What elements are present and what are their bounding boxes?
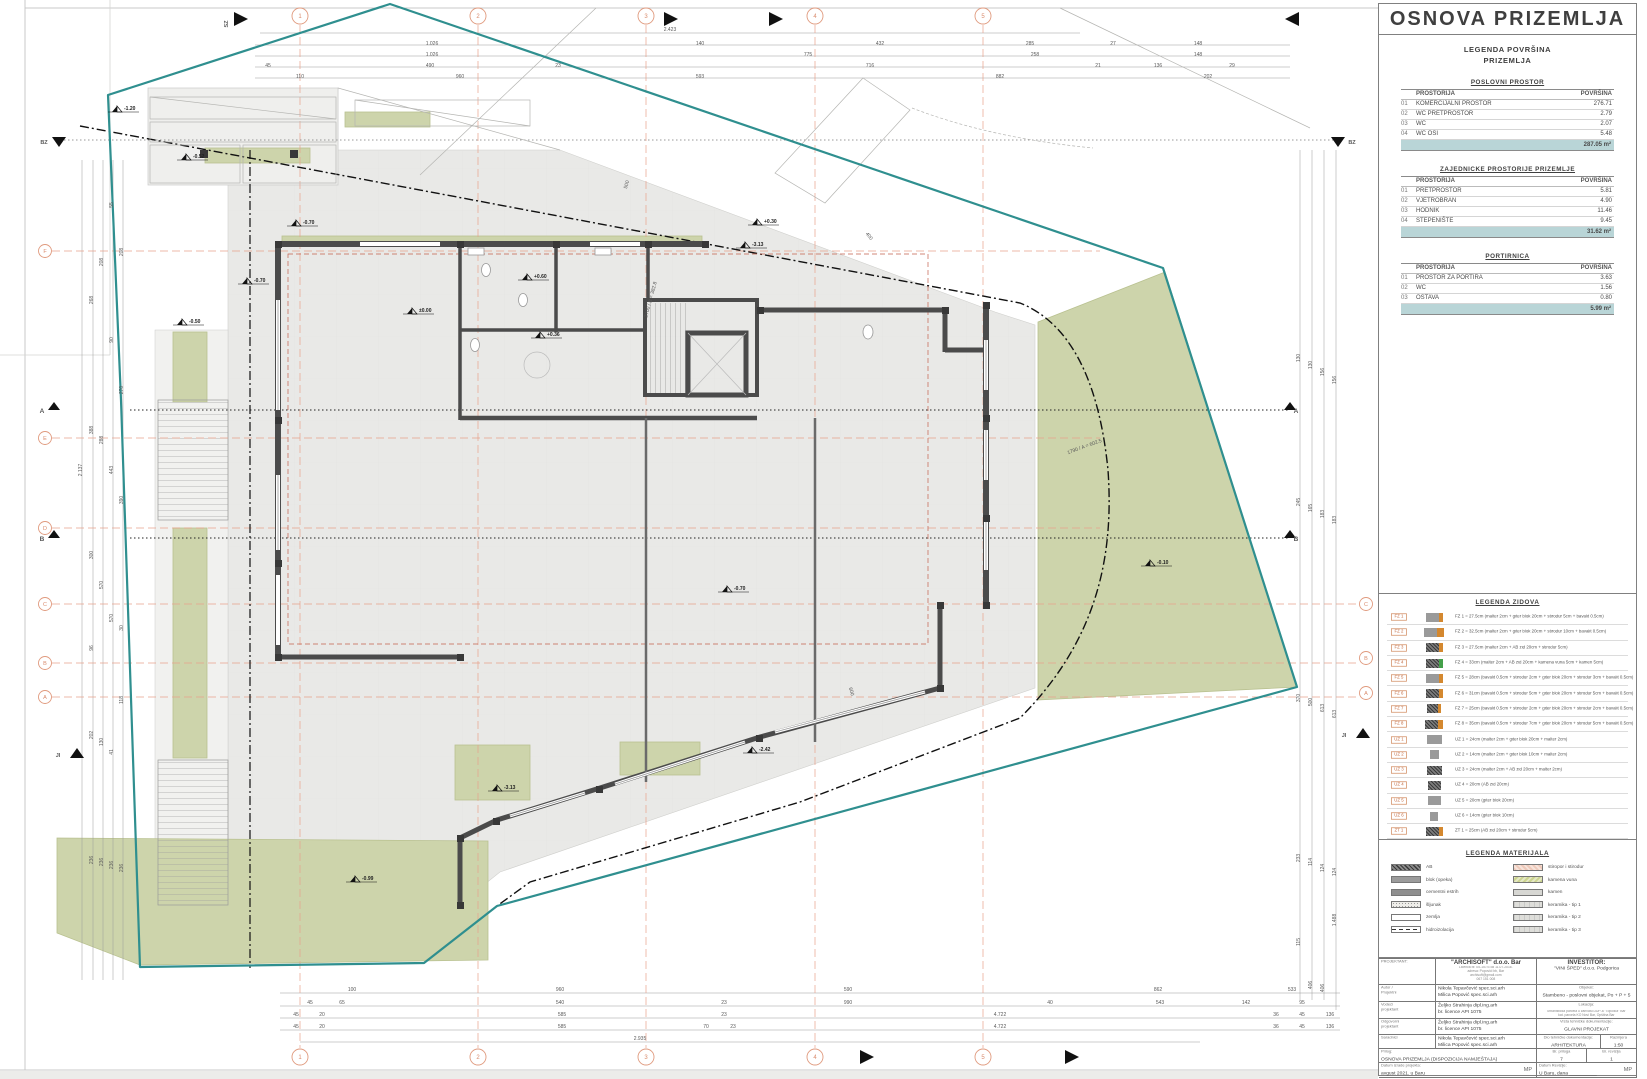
wall-legend-row: FZ 5FZ 5 = 28cm (bavalit 0.5cm + stirodu…	[1387, 671, 1628, 686]
dim-label: 45	[307, 1000, 313, 1006]
dim-label: 114	[1308, 858, 1314, 866]
material-row: stiropor i stirodur	[1513, 861, 1625, 874]
material-legend: LEGENDA MATERIJALA ABblok (opeka)cementn…	[1379, 844, 1636, 958]
material-row: hidroizolacija	[1391, 924, 1503, 937]
title-block-cell: PROJEKTANT:	[1379, 959, 1436, 985]
dim-label: 2.935	[634, 1036, 647, 1042]
dim-label: 96	[89, 645, 95, 651]
wall-swatch	[1419, 643, 1449, 652]
title-block-cell: Dio tehničke dokumentacije:ARHITEKTURA	[1537, 1035, 1601, 1049]
dim-label: 165	[1308, 504, 1314, 513]
dim-label: 500	[1308, 698, 1314, 707]
dim-label: BZ	[1348, 140, 1356, 146]
dim-label: 124	[1332, 868, 1338, 877]
dim-label: 45	[265, 63, 271, 69]
level-label: +0.60	[534, 274, 547, 280]
dim-label: 55	[109, 202, 115, 208]
title-block: PROJEKTANT:"ARCHISOFT" d.o.o. BarLicenca…	[1379, 958, 1636, 1077]
grid-bubble-label: A	[1364, 691, 1368, 697]
dim-label: 540	[556, 1000, 565, 1006]
grid-bubble-label: E	[43, 436, 47, 442]
wall-legend-row: ZT 1ZT 1 = 25cm (AB zid 20cm + stirodur …	[1387, 824, 1628, 839]
grid-bubble-label: C	[1364, 602, 1368, 608]
material-label: keramika - tip 1	[1548, 902, 1581, 907]
wall-tag: UZ 4	[1391, 782, 1407, 789]
title-block-cell: Željko Strahinja dipl.ing.arh br. licenc…	[1436, 1019, 1537, 1035]
dim-label: 300	[89, 551, 95, 560]
material-row: keramika - tip 2	[1513, 911, 1625, 924]
title-block-cell: Nikola Tepavčević spec.sci.arh Milica Po…	[1436, 985, 1537, 1002]
dim-label: 570	[109, 614, 115, 623]
dim-label: 443	[109, 466, 115, 475]
dim-label: 202	[89, 731, 95, 740]
area-table-row: 02WC1.56	[1401, 284, 1614, 294]
dim-label: 570	[99, 581, 105, 590]
dim-label: 148	[1194, 41, 1203, 47]
dim-label: 882	[996, 74, 1005, 80]
wall-tag: FZ 4	[1391, 659, 1407, 666]
drawing-sheet: 2.4231.026140432285271481.02677525814845…	[0, 0, 1647, 1079]
dim-label: A	[1294, 408, 1299, 415]
title-block-cell: Lokacija:urbanistička parcela u zahvatu …	[1537, 1002, 1637, 1019]
dim-label: 23	[721, 1000, 727, 1006]
dim-label: 142	[1242, 1000, 1251, 1006]
grid-bubble-label: B	[1364, 656, 1368, 662]
wall-desc: UZ 5 = 20cm (giter blok 20cm)	[1455, 799, 1514, 803]
wall-swatch	[1419, 674, 1449, 683]
level-label: -2.42	[759, 747, 771, 753]
wall-swatch	[1419, 628, 1449, 637]
dim-label: 775	[804, 52, 813, 58]
material-label: blok (opeka)	[1426, 877, 1452, 882]
dim-label: 400	[864, 231, 874, 241]
wall-swatch	[1419, 689, 1449, 698]
dim-label: 236	[109, 861, 115, 870]
dim-label: 202	[1204, 74, 1213, 80]
wall-tag: ZT 1	[1391, 828, 1407, 835]
wall-legend-row: UZ 2UZ 2 = 14cm (malter 2cm + giter blok…	[1387, 748, 1628, 763]
dim-label: 285	[1026, 41, 1035, 47]
level-label: +0.36	[547, 332, 560, 338]
area-table-row: 02VJETROBRAN4.90	[1401, 197, 1614, 207]
wall-legend-row: FZ 6FZ 6 = 31cm (bavalit 0.5cm + stirodu…	[1387, 686, 1628, 701]
wall-legend-row: UZ 5UZ 5 = 20cm (giter blok 20cm)	[1387, 794, 1628, 809]
dim-label: 270	[119, 386, 125, 395]
dim-label: 40	[1047, 1000, 1053, 1006]
wall-desc: FZ 5 = 28cm (bavalit 0.5cm + stirodur 2c…	[1455, 676, 1633, 680]
dim-label: 2.137	[78, 464, 84, 477]
dim-label: 45	[293, 1024, 299, 1030]
material-swatch	[1391, 926, 1421, 933]
dim-label: 130	[1308, 361, 1314, 370]
wall-desc: UZ 2 = 14cm (malter 2cm + giter blok 10c…	[1455, 753, 1567, 757]
dim-label: 20	[319, 1012, 325, 1018]
level-label: -0.50	[189, 319, 201, 325]
dim-label: 716	[866, 63, 875, 69]
dim-label: 1.026	[426, 41, 439, 47]
dim-label: 29	[1229, 63, 1235, 69]
dim-label: 208	[119, 248, 125, 257]
dim-label: 45	[1299, 1012, 1305, 1018]
wall-desc: FZ 8 = 35cm (bavalit 0.5cm + stirodur 7c…	[1455, 722, 1633, 726]
title-block-cell: Prilog:OSNOVA PRIZEMLJA (DISPOZICIJA NAM…	[1379, 1049, 1537, 1063]
wall-desc: FZ 1 = 27.5cm (malter 2cm + giter blok 2…	[1455, 615, 1604, 619]
wall-swatch	[1419, 613, 1449, 622]
wall-swatch	[1419, 750, 1449, 759]
dim-label: 23	[730, 1024, 736, 1030]
wall-tag: UZ 2	[1391, 751, 1407, 758]
wall-desc: FZ 3 = 27.5cm (malter 2cm + AB zid 20cm …	[1455, 646, 1568, 650]
material-row: blok (opeka)	[1391, 874, 1503, 887]
dim-label: 36	[1273, 1012, 1279, 1018]
material-label: keramika - tip 3	[1548, 927, 1581, 932]
area-tables: POSLOVNI PROSTORPROSTORIJAPOVRŠINA01KOME…	[1379, 79, 1636, 315]
material-swatch	[1513, 864, 1543, 871]
wall-legend-row: FZ 7FZ 7 = 25cm (bavalit 0.5cm + stirodu…	[1387, 702, 1628, 717]
dim-label: 140	[696, 41, 705, 47]
wall-legend-rows: FZ 1FZ 1 = 27.5cm (malter 2cm + giter bl…	[1387, 610, 1628, 839]
area-table-row: 04WC OSI5.48	[1401, 130, 1614, 140]
area-table-name: POSLOVNI PROSTOR	[1401, 79, 1614, 86]
level-marker	[117, 106, 122, 112]
wall-desc: UZ 6 = 14cm (giter blok 10cm)	[1455, 814, 1514, 818]
material-row: šljunak	[1391, 899, 1503, 912]
dim-label: 245	[1296, 498, 1302, 507]
dim-label: 36	[1273, 1024, 1279, 1030]
dim-label: 65	[339, 1000, 345, 1006]
wall-legend-row: UZ 4UZ 4 = 20cm (AB zid 20cm)	[1387, 778, 1628, 793]
material-swatch	[1513, 889, 1543, 896]
material-swatch	[1391, 914, 1421, 921]
wall-desc: FZ 7 = 25cm (bavalit 0.5cm + stirodur 2c…	[1455, 707, 1633, 711]
material-swatch	[1391, 901, 1421, 908]
title-block-cell: "ARCHISOFT" d.o.o. BarLicenca br. 05-157…	[1436, 959, 1537, 985]
wall-swatch	[1419, 781, 1449, 790]
wall-legend-row: UZ 6UZ 6 = 14cm (giter blok 10cm)	[1387, 809, 1628, 824]
wall-legend-row: FZ 1FZ 1 = 27.5cm (malter 2cm + giter bl…	[1387, 610, 1628, 625]
title-block-cell: Datum Revizije:U Baru, dana __________MP	[1537, 1063, 1637, 1078]
dim-label: 490	[426, 63, 435, 69]
material-row: cementni estrih	[1391, 886, 1503, 899]
title-block-cell: Razmjera1:50	[1601, 1035, 1637, 1049]
dim-label: 236	[119, 864, 125, 873]
title-block-cell: Vodeći projektant	[1379, 1002, 1436, 1019]
dim-label: 30	[119, 625, 125, 631]
floor-plan: 2.4231.026140432285271481.02677525814845…	[0, 0, 1378, 1079]
level-label: -3.13	[504, 785, 516, 791]
dim-label: 208	[99, 258, 105, 267]
area-table-total: 287.05 m²	[1401, 140, 1614, 151]
level-label: +0.30	[764, 219, 777, 225]
area-table-name: PORTIRNICA	[1401, 253, 1614, 260]
wall-tag: FZ 6	[1391, 690, 1407, 697]
area-table-row: 03HODNIK11.46	[1401, 207, 1614, 217]
dim-label: 2.423	[664, 27, 677, 33]
wall-tag: UZ 5	[1391, 797, 1407, 804]
material-label: AB	[1426, 865, 1432, 870]
title-block-cell: Datum izrade projekta:avgust 2021. u Bar…	[1379, 1063, 1537, 1078]
dim-label: 585	[558, 1012, 567, 1018]
dim-label: 543	[1156, 1000, 1165, 1006]
dim-label: B	[1294, 536, 1299, 543]
area-table: PORTIRNICAPROSTORIJAPOVRŠINA01PROSTOR ZA…	[1401, 253, 1614, 315]
dim-label: 288	[99, 436, 105, 445]
wall-swatch	[1419, 704, 1449, 713]
material-row: zemlja	[1391, 911, 1503, 924]
dim-label: 115	[1296, 938, 1302, 946]
material-row: keramika - tip 1	[1513, 899, 1625, 912]
dim-label: 156	[1320, 368, 1326, 377]
level-label: -0.10	[1157, 560, 1169, 566]
wall-swatch	[1419, 827, 1449, 836]
dim-label: 268	[89, 296, 95, 305]
wall-legend-row: UZ 3UZ 3 = 24cm (malter 2cm + AB zid 20c…	[1387, 763, 1628, 778]
wall-tag: FZ 5	[1391, 675, 1407, 682]
area-table-row: 01PROSTOR ZA PORTIRA3.63	[1401, 274, 1614, 284]
dim-label: 183	[1320, 510, 1326, 519]
dim-label: 236	[89, 856, 95, 865]
title-block-cell: Željko Strahinja dipl.ing.arh br. licenc…	[1436, 1002, 1537, 1019]
title-block-cell: Odgovorni projektant	[1379, 1019, 1436, 1035]
material-swatch	[1513, 914, 1543, 921]
dim-label: 1.488	[1332, 914, 1338, 927]
legend-heading: LEGENDA POVRŠINA PRIZEMLJA	[1379, 44, 1636, 67]
wall-tag: FZ 1	[1391, 614, 1407, 621]
level-marker	[182, 319, 187, 325]
wall-tag: FZ 3	[1391, 644, 1407, 651]
area-table-row: 01KOMERCIJALNI PROSTOR276.71	[1401, 100, 1614, 110]
level-marker	[112, 106, 117, 112]
material-swatch	[1513, 901, 1543, 908]
dim-label: 233	[1296, 854, 1302, 863]
building-footprint	[148, 88, 1035, 908]
level-label: -3.13	[752, 242, 764, 248]
dim-label: 613	[1320, 704, 1326, 713]
grid-bubble-label: D	[43, 526, 47, 532]
wall-swatch	[1419, 735, 1449, 744]
dim-label: JI	[56, 753, 61, 759]
level-label: -0.52	[193, 154, 205, 160]
level-marker	[177, 319, 182, 325]
wall-tag: FZ 7	[1391, 705, 1407, 712]
dim-label: 21	[1095, 63, 1101, 69]
wall-legend-row: UZ 1UZ 1 = 24cm (malter 2cm + giter blok…	[1387, 732, 1628, 747]
dim-label: 585	[558, 1024, 567, 1030]
material-swatch	[1513, 876, 1543, 883]
dim-label: 95	[1299, 1000, 1305, 1006]
wall-desc: FZ 2 = 32.5cm (malter 2cm + giter blok 2…	[1455, 630, 1606, 634]
grid-bubble-label: C	[43, 602, 47, 608]
material-label: hidroizolacija	[1426, 927, 1454, 932]
level-label: -0.70	[303, 220, 315, 226]
material-row: keramika - tip 3	[1513, 924, 1625, 937]
wall-legend-row: FZ 4FZ 4 = 33cm (malter 2cm + AB zid 20c…	[1387, 656, 1628, 671]
grid-bubble-label: A	[43, 695, 47, 701]
title-block-cell: Objekat:Stambeno - poslovni objekat, Po …	[1537, 985, 1637, 1002]
area-table-row: 01PRETPROSTOR5.81	[1401, 187, 1614, 197]
title-block-cell: INVESTITOR:"VINI ŠPED" d.o.o. Podgorica	[1537, 959, 1637, 985]
material-swatch	[1513, 926, 1543, 933]
material-label: šljunak	[1426, 902, 1441, 907]
wall-swatch	[1419, 812, 1449, 821]
grid-bubble-label: B	[43, 661, 47, 667]
dim-label: A	[40, 408, 45, 415]
dim-label: 130	[99, 738, 105, 747]
material-label: stiropor i stirodur	[1548, 865, 1584, 870]
dim-label: 613	[1332, 710, 1338, 719]
dim-label: 1.026	[426, 52, 439, 58]
dim-label: 20	[319, 1024, 325, 1030]
dim-label: 960	[456, 74, 465, 80]
area-table-header: PROSTORIJAPOVRŠINA	[1401, 263, 1614, 274]
wall-legend: LEGENDA ZIDOVA FZ 1FZ 1 = 27.5cm (malter…	[1379, 593, 1636, 840]
material-label: kamena vuna	[1548, 877, 1577, 882]
wall-desc: UZ 1 = 24cm (malter 2cm + giter blok 20c…	[1455, 737, 1567, 741]
area-table: ZAJEDNICKE PROSTORIJE PRIZEMLJEPROSTORIJ…	[1401, 166, 1614, 238]
wall-legend-row: FZ 3FZ 3 = 27.5cm (malter 2cm + AB zid 2…	[1387, 641, 1628, 656]
dim-label: 432	[876, 41, 885, 47]
area-table-row: 02WC PRETPROSTOR2.79	[1401, 110, 1614, 120]
area-table-header: PROSTORIJAPOVRŠINA	[1401, 176, 1614, 187]
wall-legend-row: FZ 8FZ 8 = 35cm (bavalit 0.5cm + stirodu…	[1387, 717, 1628, 732]
dim-label: B	[40, 536, 45, 543]
wall-tag: UZ 3	[1391, 767, 1407, 774]
dim-label: 41	[109, 749, 115, 755]
dim-label: 136	[1326, 1024, 1335, 1030]
wall-tag: UZ 1	[1391, 736, 1407, 743]
dim-label: 990	[844, 1000, 853, 1006]
legend-heading-line2: PRIZEMLJA	[1379, 55, 1636, 66]
wall-desc: FZ 6 = 31cm (bavalit 0.5cm + stirodur 5c…	[1455, 691, 1633, 695]
dim-label: 183	[1332, 516, 1338, 525]
dim-label: 406	[1308, 981, 1314, 990]
wall-desc: UZ 4 = 20cm (AB zid 20cm)	[1455, 783, 1509, 787]
dim-label: 388	[89, 426, 95, 435]
dim-label: 590	[844, 987, 853, 993]
wall-tag: UZ 6	[1391, 812, 1407, 819]
material-legend-right: stiropor i stirodurkamena vunakamenkeram…	[1513, 861, 1625, 936]
title-panel: OSNOVA PRIZEMLJA LEGENDA POVRŠINA PRIZEM…	[1378, 3, 1637, 1076]
legend-heading-line1: LEGENDA POVRŠINA	[1379, 44, 1636, 55]
area-table-row: 03WC2.07	[1401, 120, 1614, 130]
material-label: kamen	[1548, 890, 1562, 895]
wall-swatch	[1419, 659, 1449, 668]
title-block-cell: Vrsta tehničke dokumentacije:GLAVNI PROJ…	[1537, 1019, 1637, 1035]
material-swatch	[1391, 889, 1421, 896]
area-table-header: PROSTORIJAPOVRŠINA	[1401, 89, 1614, 100]
dim-label: 23	[721, 1012, 727, 1018]
dim-label: 110	[296, 74, 304, 80]
material-row: kamen	[1513, 886, 1625, 899]
level-label: ±0.00	[419, 308, 432, 314]
title-block-cell: Autor / Projektni	[1379, 985, 1436, 1002]
dim-label: 45	[1299, 1024, 1305, 1030]
dim-label: 90	[109, 337, 115, 343]
dim-label: JI	[1342, 733, 1347, 739]
wall-desc: ZT 1 = 25cm (AB zid 20cm + stirodur 5cm)	[1455, 829, 1537, 833]
material-legend-left: ABblok (opeka)cementni estrihšljunakzeml…	[1391, 861, 1503, 936]
dim-label: 27	[1110, 41, 1116, 47]
dim-label: 4.722	[994, 1012, 1007, 1018]
title-block-cell: Br. revizija1	[1587, 1049, 1637, 1063]
dim-label: 45	[293, 1012, 299, 1018]
dim-label: 23	[555, 63, 561, 69]
area-table: POSLOVNI PROSTORPROSTORIJAPOVRŠINA01KOME…	[1401, 79, 1614, 151]
material-swatch	[1391, 864, 1421, 871]
level-label: -0.70	[734, 586, 746, 592]
wall-legend-title: LEGENDA ZIDOVA	[1387, 599, 1628, 606]
dim-label: 118	[119, 696, 125, 704]
dim-label: 593	[696, 74, 705, 80]
wall-tag: FZ 8	[1391, 721, 1407, 728]
wall-desc: UZ 3 = 24cm (malter 2cm + AB zid 20cm + …	[1455, 768, 1562, 772]
wall-swatch	[1419, 766, 1449, 775]
area-table-row: 04STEPENIŠTE9.45	[1401, 217, 1614, 227]
area-table-total: 31.62 m²	[1401, 227, 1614, 238]
material-row: AB	[1391, 861, 1503, 874]
material-swatch	[1391, 876, 1421, 883]
area-table-total: 5.99 m²	[1401, 304, 1614, 315]
wall-tag: FZ 2	[1391, 629, 1407, 636]
dim-label: 390	[119, 496, 125, 505]
dim-label: 960	[556, 987, 565, 993]
dim-label: 4.722	[994, 1024, 1007, 1030]
dim-label: 148	[1194, 52, 1203, 58]
dim-label: 136	[1154, 63, 1163, 69]
wall-legend-row: FZ 2FZ 2 = 32.5cm (malter 2cm + giter bl…	[1387, 625, 1628, 640]
dim-label: 406	[1320, 984, 1326, 993]
dim-label: 258	[1031, 52, 1040, 58]
dim-label: BZ	[40, 140, 48, 146]
dim-label: 124	[1320, 864, 1326, 873]
dim-label: SZ	[224, 20, 230, 28]
dim-label: 156	[1332, 376, 1338, 385]
area-table-row: 03OSTAVA0.80	[1401, 294, 1614, 304]
dim-label: 370	[1296, 694, 1302, 703]
material-label: zemlja	[1426, 915, 1440, 920]
material-legend-title: LEGENDA MATERIJALA	[1391, 850, 1624, 857]
level-label: -0.99	[362, 876, 374, 882]
dim-label: 533	[1288, 987, 1297, 993]
level-label: -0.70	[254, 278, 266, 284]
dim-label: 130	[1296, 354, 1302, 363]
dim-label: 100	[348, 987, 357, 993]
title-block-cell: Saradnici	[1379, 1035, 1436, 1049]
area-table-name: ZAJEDNICKE PROSTORIJE PRIZEMLJE	[1401, 166, 1614, 173]
title-block-cell: Br. priloga7	[1537, 1049, 1587, 1063]
level-label: -1.20	[124, 106, 136, 112]
dim-label: 236	[99, 858, 105, 867]
wall-swatch	[1419, 796, 1449, 805]
dim-label: 862	[1154, 987, 1163, 993]
dim-label: 70	[703, 1024, 709, 1030]
material-label: cementni estrih	[1426, 890, 1459, 895]
material-row: kamena vuna	[1513, 874, 1625, 887]
wall-desc: FZ 4 = 33cm (malter 2cm + AB zid 20cm + …	[1455, 661, 1603, 665]
title-block-cell: Nikola Tepavčević spec.sci.arh Milica Po…	[1436, 1035, 1537, 1049]
wall-swatch	[1419, 720, 1449, 729]
dim-label: 136	[1326, 1012, 1335, 1018]
material-label: keramika - tip 2	[1548, 915, 1581, 920]
sheet-title: OSNOVA PRIZEMLJA	[1379, 4, 1636, 35]
